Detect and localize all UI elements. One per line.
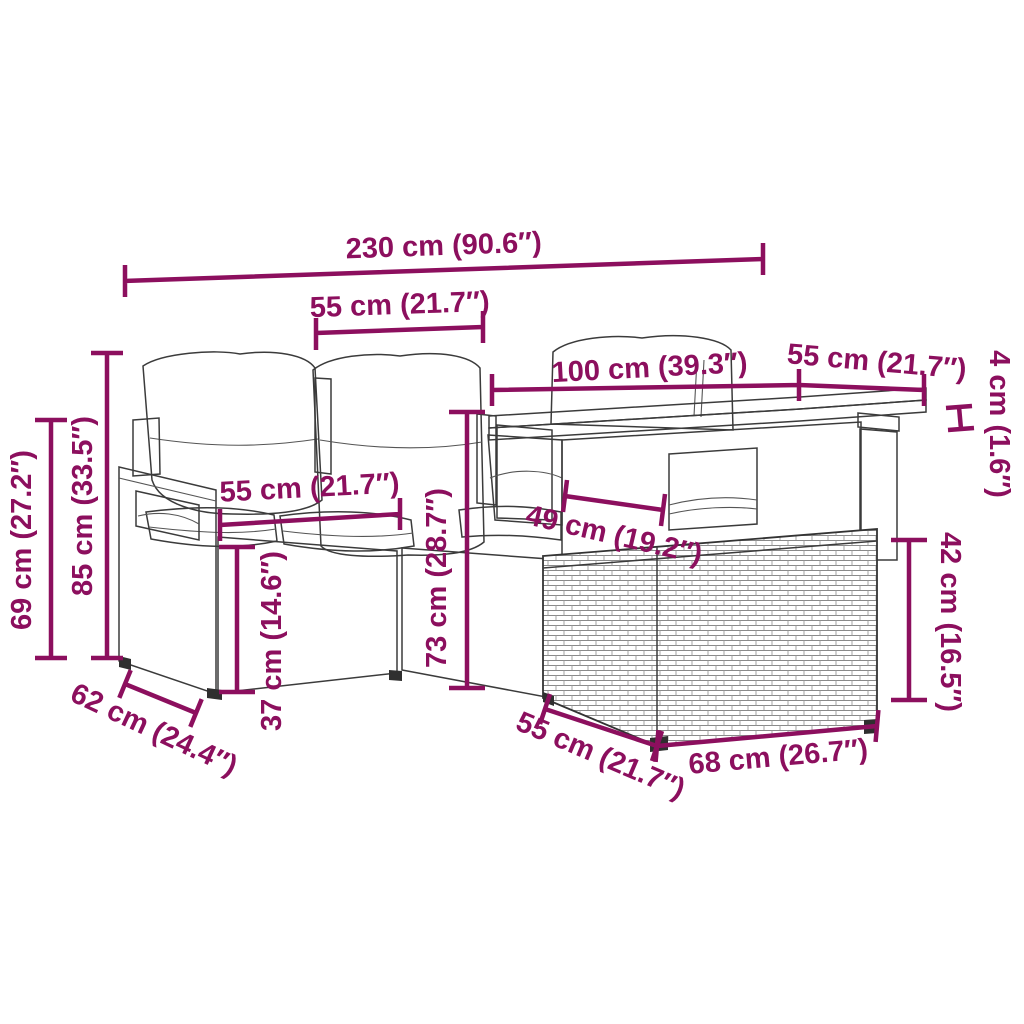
label-table-depth: 55 cm (21.7″) [786, 338, 968, 386]
dimline-seat-height [219, 547, 255, 692]
furniture-dimension-illustration: 230 cm (90.6″) 55 cm (21.7″) 100 cm (39.… [0, 0, 1024, 1024]
dimension-diagram: 230 cm (90.6″) 55 cm (21.7″) 100 cm (39.… [0, 0, 1024, 1024]
dimline-table-height [449, 412, 485, 688]
table-base-opening-cushion-lines [669, 498, 757, 514]
label-table-height: 73 cm (28.7″) [421, 488, 453, 668]
sofa-set-drawing [119, 336, 926, 752]
back-cushion-middle-crease [320, 440, 482, 448]
label-seat-height: 37 cm (14.6″) [256, 551, 288, 731]
armrest [119, 467, 216, 694]
label-total-height: 85 cm (33.5″) [67, 416, 99, 596]
armrest-post [133, 418, 160, 476]
dimline-backrest-height [35, 420, 67, 658]
seat-cushion-right-edge [283, 531, 413, 537]
sofa-base-left [218, 537, 397, 693]
back-cushion-right-lower-crease [490, 471, 562, 478]
table-base-opening [669, 448, 757, 530]
dimline-tabletop-thickness [946, 406, 974, 430]
label-tabletop-thickness: 4 cm (1.6″) [983, 350, 1015, 498]
label-overall-width: 230 cm (90.6″) [345, 227, 542, 266]
label-stool-height: 42 cm (16.5″) [934, 532, 966, 712]
footstool [543, 529, 877, 746]
back-cushion-left-crease [150, 438, 318, 445]
label-table-length: 100 cm (39.3″) [551, 347, 748, 389]
label-backrest-height: 69 cm (27.2″) [6, 450, 38, 630]
label-seat-width: 55 cm (21.7″) [309, 286, 490, 324]
label-seat-depth: 55 cm (21.7″) [219, 467, 400, 508]
dimline-stool-height [891, 540, 927, 700]
armrest-window [136, 491, 199, 540]
seat-cushion-left-edge [149, 527, 276, 533]
